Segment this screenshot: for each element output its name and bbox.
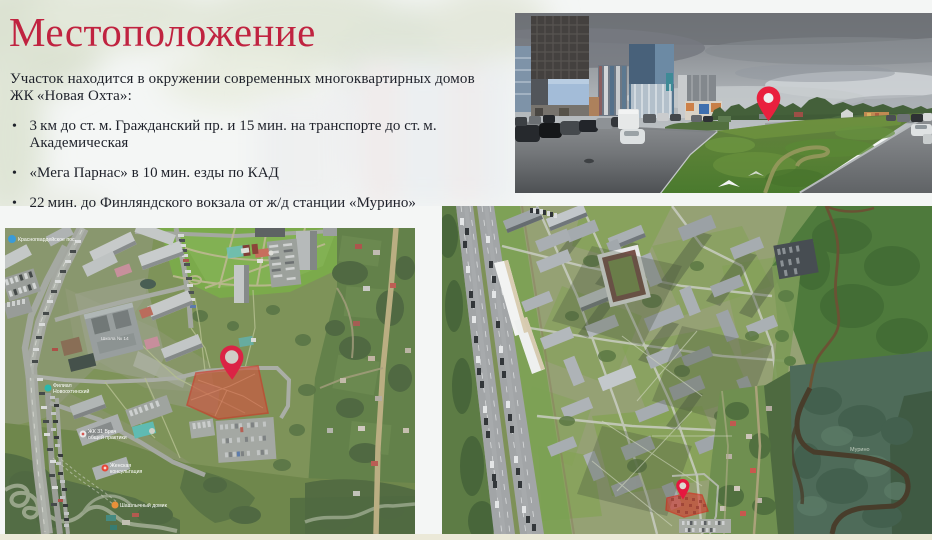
svg-text:Школа № 14: Школа № 14 (101, 336, 129, 342)
svg-text:Шашлычный домик: Шашлычный домик (120, 502, 168, 509)
svg-text:Красногвардейское пос.: Красногвардейское пос. (18, 236, 76, 243)
svg-text:консультация: консультация (110, 469, 143, 475)
svg-text:Мурино: Мурино (850, 447, 870, 453)
svg-text:Новоохтинский: Новоохтинский (53, 388, 89, 395)
svg-text:общей практики: общей практики (88, 434, 127, 441)
